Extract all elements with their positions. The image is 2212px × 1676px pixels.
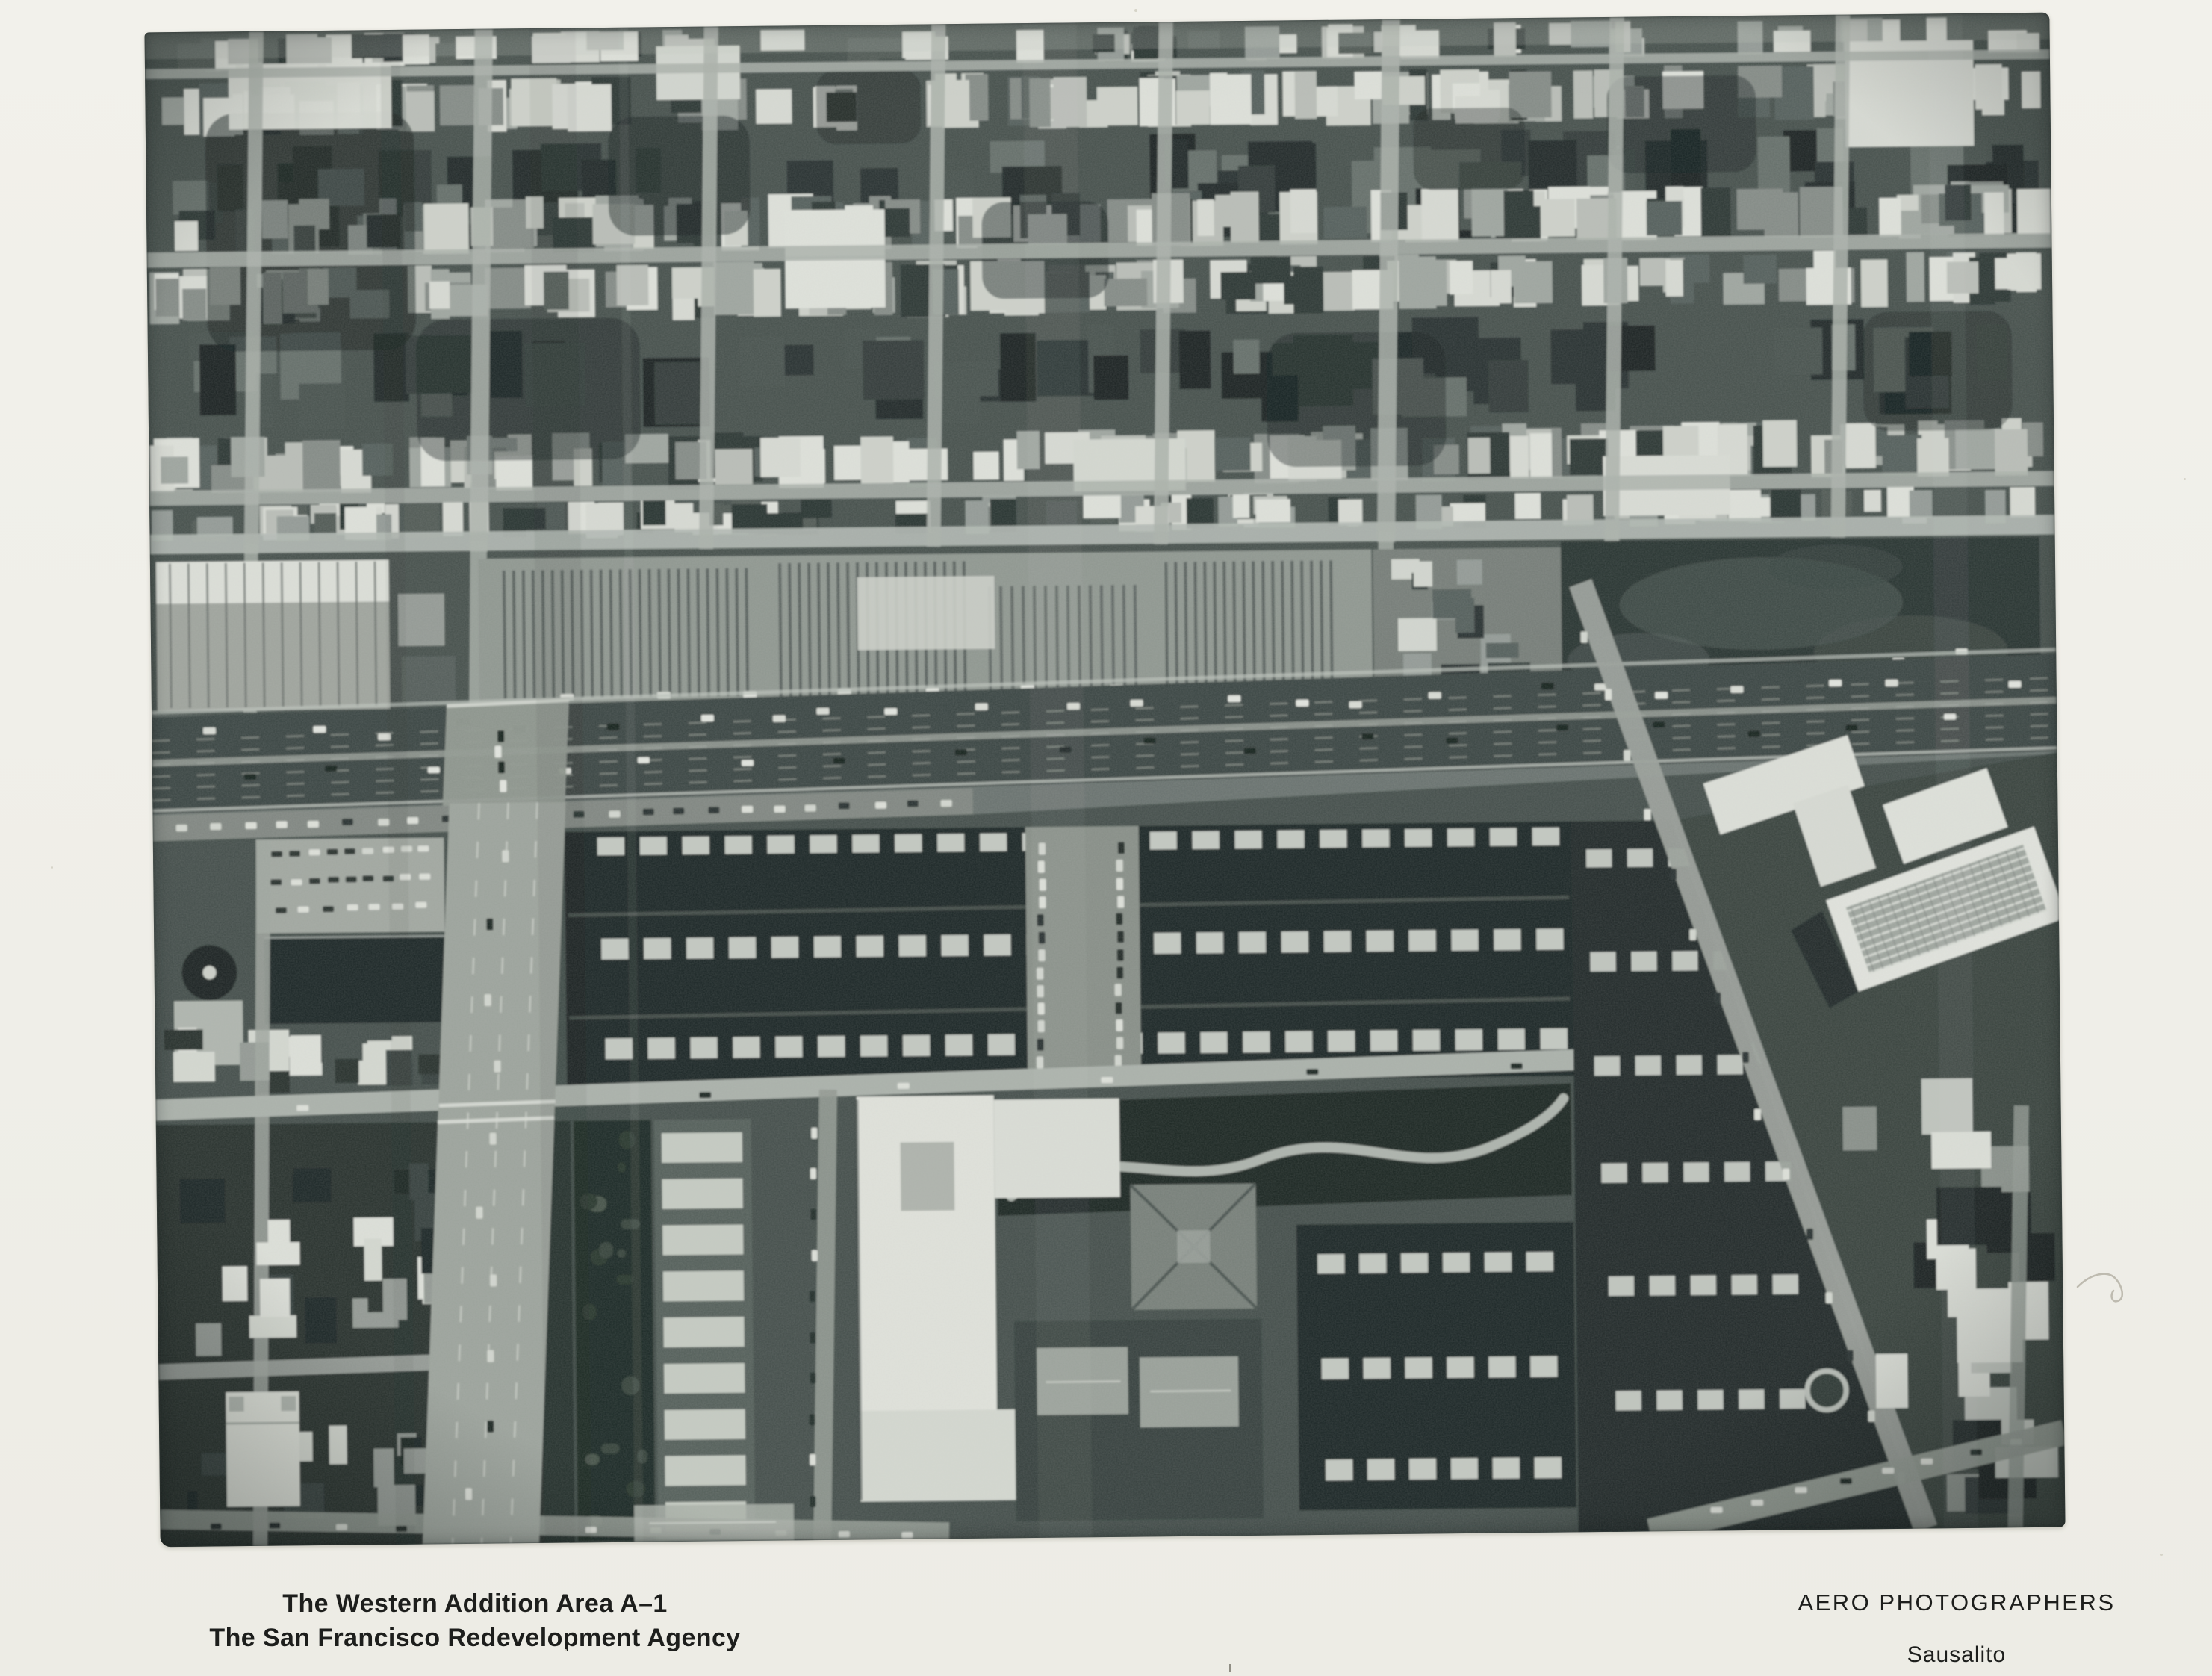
vignette-overlay <box>144 13 2065 1548</box>
caption-left: The Western Addition Area A–1 The San Fr… <box>176 1586 774 1655</box>
dust-speck <box>2184 478 2186 480</box>
dust-speck <box>51 866 53 869</box>
caption-right: AERO PHOTOGRAPHERS Sausalito <box>1762 1588 2151 1669</box>
aerial-photo-canvas <box>144 13 2065 1548</box>
dust-speck <box>565 1649 567 1651</box>
caption-agency: The San Francisco Redevelopment Agency <box>176 1621 774 1655</box>
caption-title: The Western Addition Area A–1 <box>176 1586 774 1621</box>
caption-city: Sausalito <box>1762 1642 2151 1669</box>
mat-board: The Western Addition Area A–1 The San Fr… <box>0 0 2212 1676</box>
pencil-mark <box>2069 1266 2140 1314</box>
dust-speck <box>2160 1554 2163 1556</box>
aerial-photograph <box>144 13 2065 1548</box>
caption-photographer: AERO PHOTOGRAPHERS <box>1762 1588 2151 1618</box>
dust-speck <box>1134 9 1137 12</box>
mat-tick-mark <box>1229 1664 1231 1672</box>
